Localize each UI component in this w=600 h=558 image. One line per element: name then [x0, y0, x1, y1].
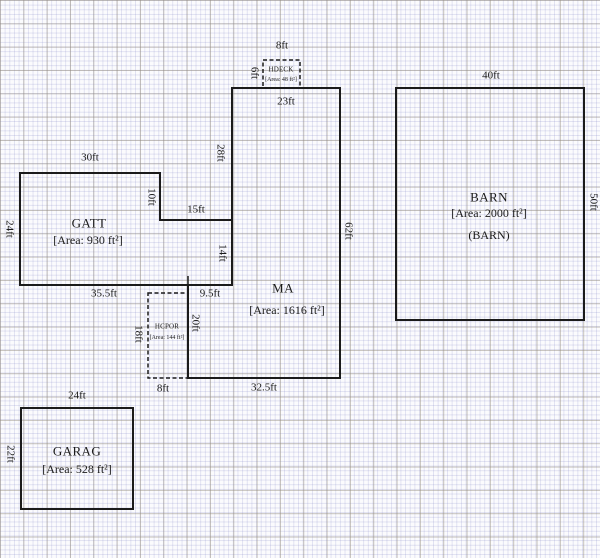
ma-dim-left-lower: 20ft	[190, 314, 201, 332]
hdeck-dim-top: 8ft	[276, 41, 288, 52]
ma-dim-bottom-left: 9.5ft	[200, 289, 220, 300]
barn-area-label: [Area: 2000 ft²]	[451, 207, 527, 219]
gatt-dim-right-lower: 14ft	[217, 244, 228, 262]
ma-dim-right: 62ft	[343, 222, 354, 240]
barn-sub-label: (BARN)	[468, 229, 509, 241]
hcpor-area-label: [Area: 144 ft²]	[150, 335, 185, 341]
garag-name-label: GARAG	[53, 445, 101, 458]
hdeck-outline-dashed	[263, 60, 300, 88]
garag-outline	[21, 408, 133, 509]
ma-outline	[188, 88, 340, 378]
hdeck-area-label: [Area: 48 ft²]	[265, 77, 297, 83]
ma-area-label: [Area: 1616 ft²]	[249, 304, 325, 316]
hcpor-name-label: HCPOR	[155, 324, 179, 331]
garag-dim-left: 22ft	[5, 445, 16, 463]
gatt-dim-bottom: 35.5ft	[91, 289, 117, 300]
garag-dim-top: 24ft	[68, 391, 86, 402]
ma-dim-top: 23ft	[277, 97, 295, 108]
garag-area-label: [Area: 528 ft²]	[42, 463, 112, 475]
graph-paper-sheet: 30ft 24ft 10ft 15ft 14ft 35.5ft GATT [Ar…	[0, 0, 600, 558]
gatt-outline	[20, 173, 232, 285]
gatt-area-label: [Area: 930 ft²]	[53, 234, 123, 246]
ma-name-label: MA	[272, 282, 294, 295]
gatt-name-label: GATT	[72, 217, 107, 230]
hcpor-dim-bottom: 8ft	[157, 384, 169, 395]
barn-name-label: BARN	[470, 191, 508, 204]
ma-dim-bottom: 32.5ft	[251, 383, 277, 394]
gatt-dim-left: 24ft	[4, 220, 15, 238]
ma-dim-left-upper: 28ft	[215, 144, 226, 162]
gatt-dim-top: 30ft	[81, 153, 99, 164]
hdeck-dim-left: 6ft	[249, 67, 260, 79]
hcpor-dim-left: 18ft	[133, 325, 144, 343]
gatt-dim-notch-vertical: 10ft	[146, 188, 157, 206]
hdeck-name-label: HDECK	[268, 67, 293, 74]
barn-dim-top: 40ft	[482, 71, 500, 82]
gatt-dim-notch-horizontal: 15ft	[187, 205, 205, 216]
barn-dim-right: 50ft	[588, 193, 599, 211]
